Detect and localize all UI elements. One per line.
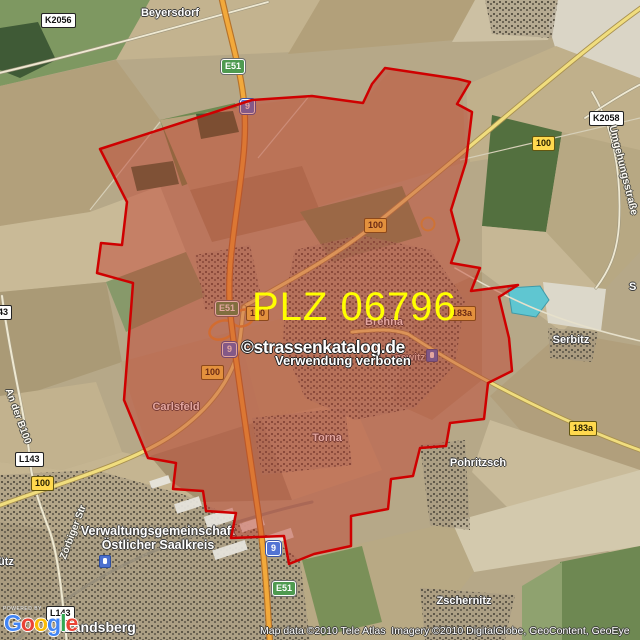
google-logo-letter: G [4, 610, 21, 636]
map-canvas[interactable]: K2056 E51 9 K2058 100 100 E51 100 9 100 … [0, 0, 640, 640]
plz-code-label: PLZ 06796 [252, 285, 457, 330]
map-attribution: Map data ©2010 Tele Atlas Imagery ©2010 … [260, 625, 630, 637]
google-logo: Google [4, 610, 77, 637]
annotation-layer: PLZ 06796 ©strassenkatalog.de Verwendung… [0, 0, 640, 640]
google-logo-letter: o [21, 610, 34, 636]
google-logo-letter: e [65, 610, 77, 636]
watermark-notice: Verwendung verboten [275, 353, 411, 368]
google-logo-letter: o [34, 610, 47, 636]
google-logo-letter: g [47, 610, 60, 636]
